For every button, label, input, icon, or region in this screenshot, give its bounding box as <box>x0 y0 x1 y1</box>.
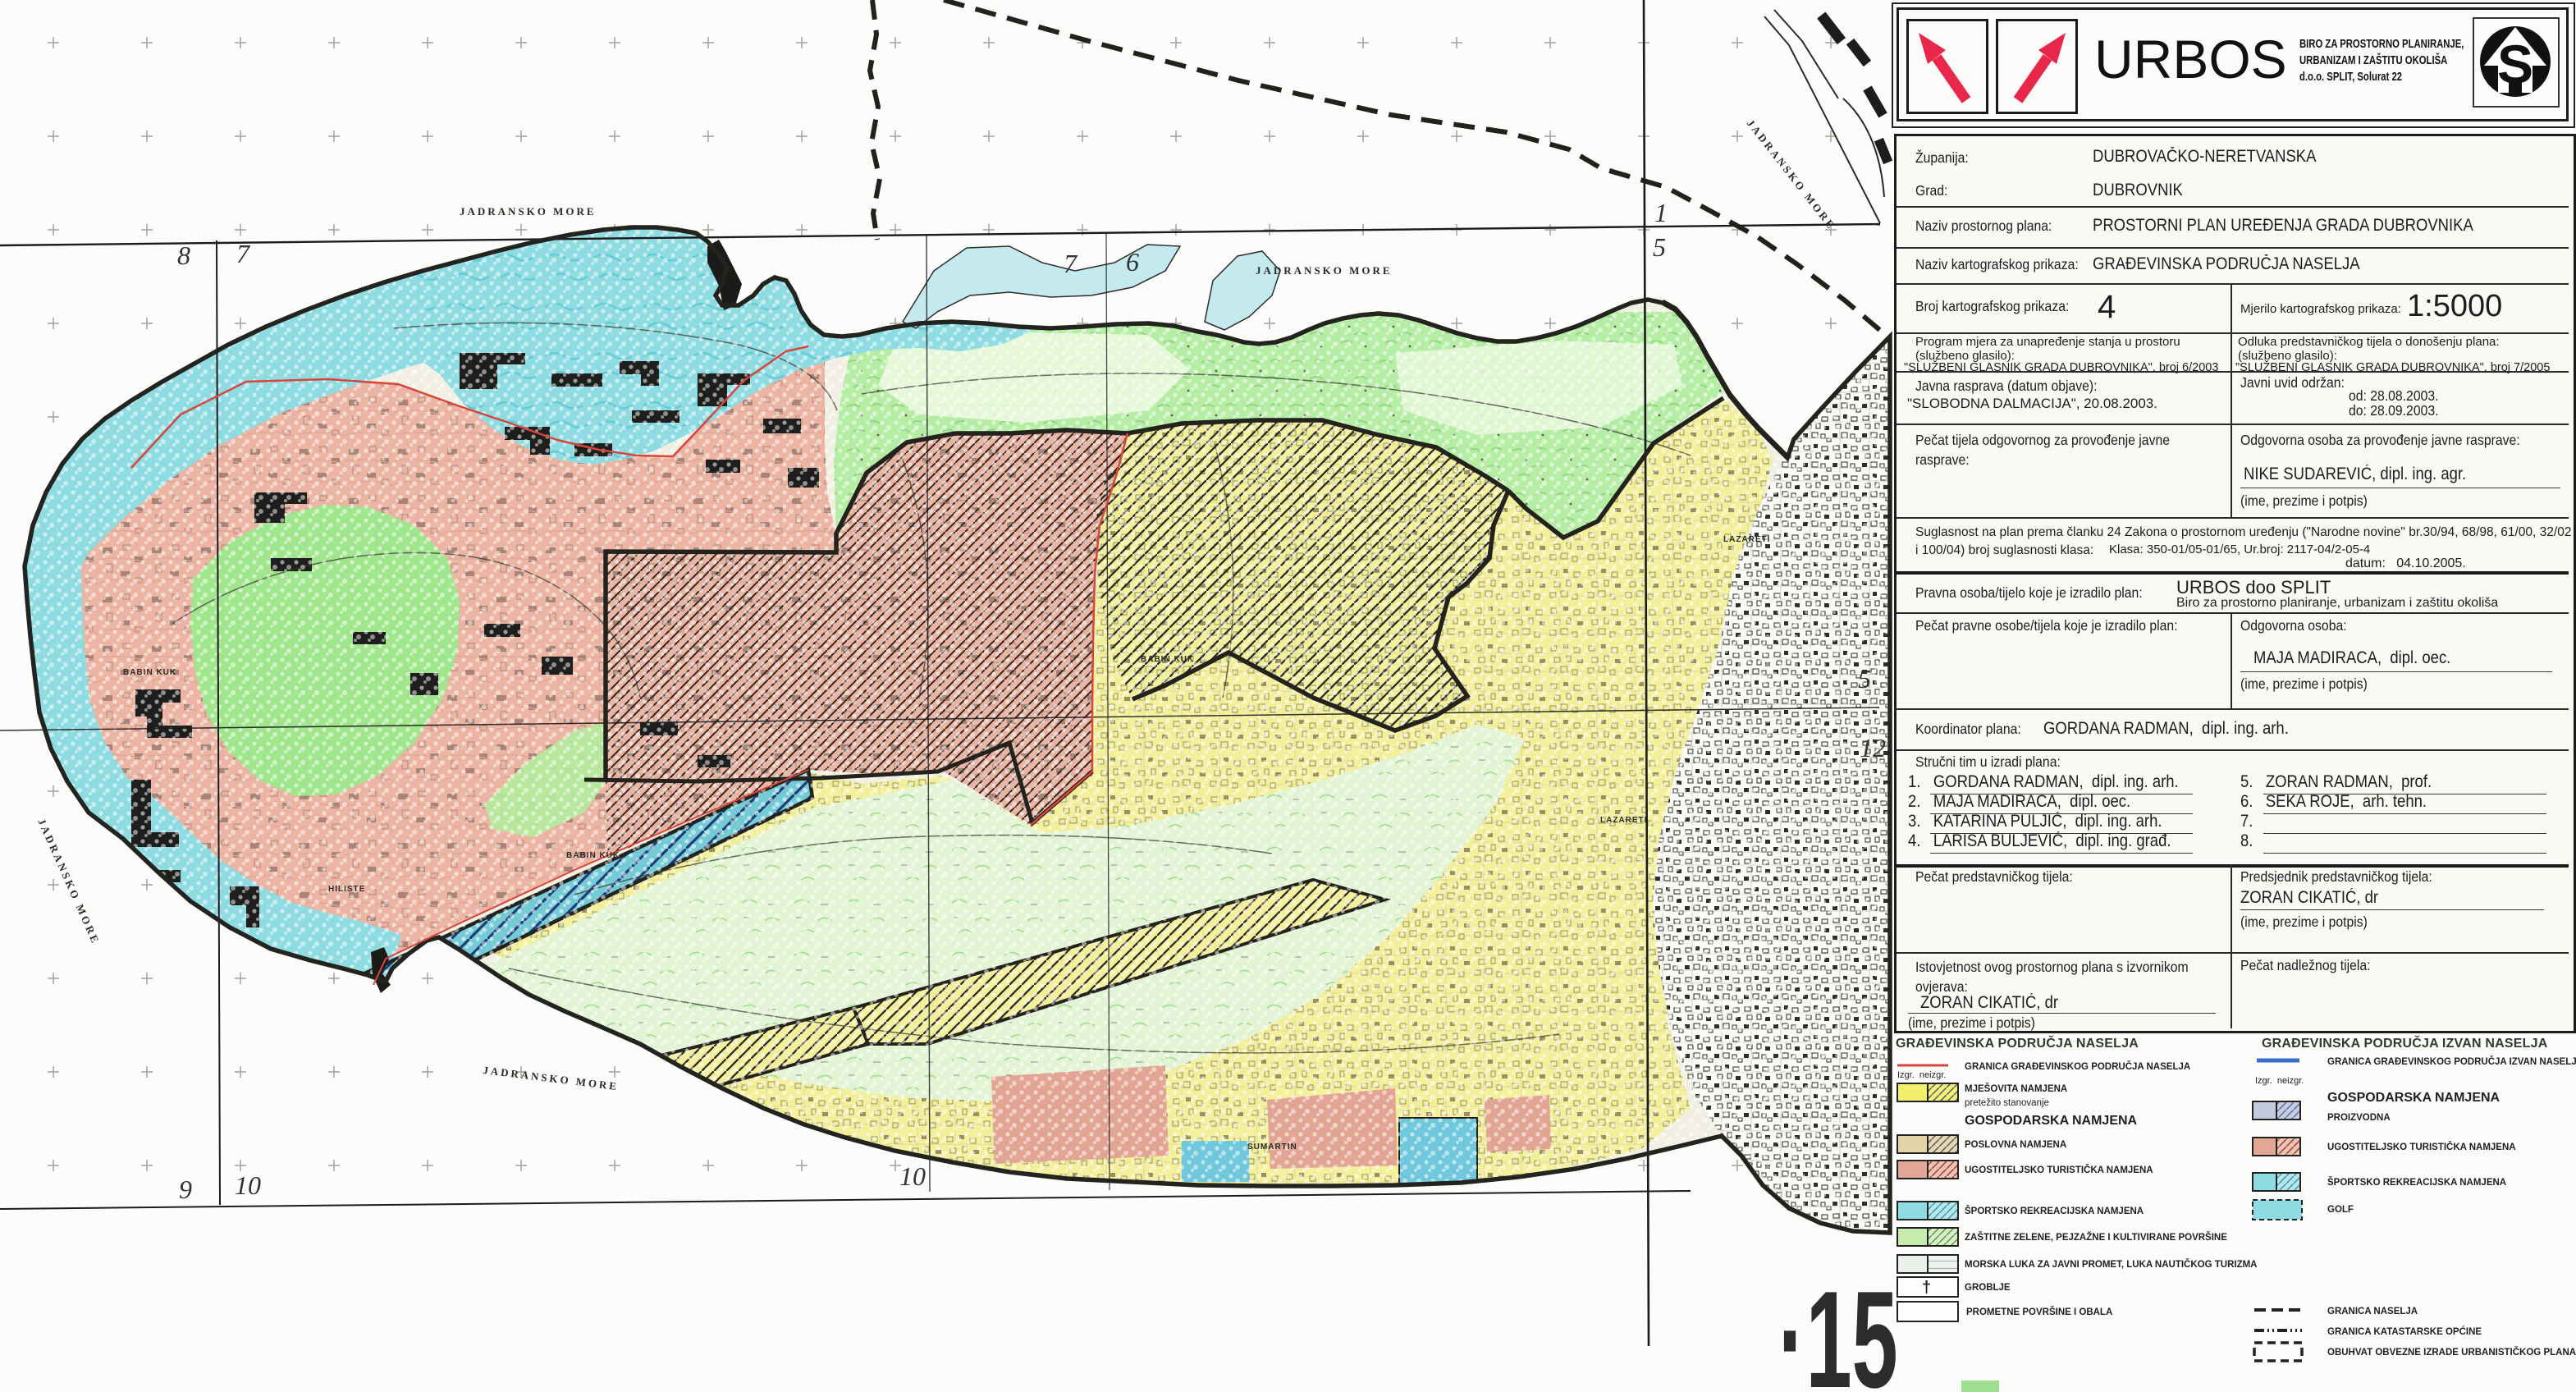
svg-text:7: 7 <box>1064 249 1078 278</box>
svg-text:POSLOVNA NAMJENA: POSLOVNA NAMJENA <box>1965 1140 2066 1150</box>
svg-text:BABIN KUK: BABIN KUK <box>123 668 176 677</box>
svg-text:OBUHVAT OBVEZNE IZRADE URBANIS: OBUHVAT OBVEZNE IZRADE URBANISTIČKOG PLA… <box>2327 1347 2576 1358</box>
svg-text:MJEŠOVITA NAMJENA: MJEŠOVITA NAMJENA <box>1965 1083 2067 1094</box>
svg-text:pretežito stanovanje: pretežito stanovanje <box>1965 1098 2049 1108</box>
svg-text:ŠPORTSKO REKREACIJSKA NAMJENA: ŠPORTSKO REKREACIJSKA NAMJENA <box>1965 1206 2144 1216</box>
svg-text:GRANICA GRAĐEVINSKOG PODRUČJA: GRANICA GRAĐEVINSKOG PODRUČJA NASELJA <box>1965 1061 2190 1072</box>
svg-text:†: † <box>1922 1279 1931 1297</box>
svg-text:GROBLJE: GROBLJE <box>1965 1283 2011 1293</box>
svg-text:7: 7 <box>236 239 251 268</box>
svg-text:GOSPODARSKA NAMJENA: GOSPODARSKA NAMJENA <box>2327 1091 2501 1105</box>
svg-text:10: 10 <box>235 1170 261 1200</box>
svg-text:UGOSTITELJSKO TURISTIČKA NAMJE: UGOSTITELJSKO TURISTIČKA NAMJENA <box>2327 1142 2516 1152</box>
svg-text:GRANICA KATASTARSKE OPĆINE: GRANICA KATASTARSKE OPĆINE <box>2327 1326 2482 1337</box>
svg-text:LAZARETI: LAZARETI <box>1600 816 1647 825</box>
svg-text:GRANICA GRAĐEVINSKOG PODRUČJA: GRANICA GRAĐEVINSKOG PODRUČJA IZVAN NASE… <box>2327 1056 2576 1067</box>
svg-text:9: 9 <box>179 1174 192 1204</box>
svg-text:HILISTE: HILISTE <box>328 885 365 894</box>
svg-text:·15: ·15 <box>1778 1264 1898 1392</box>
svg-text:JADRANSKO MORE: JADRANSKO MORE <box>460 205 597 217</box>
svg-text:GRANICA NASELJA: GRANICA NASELJA <box>2327 1307 2418 1316</box>
svg-text:PROMETNE POVRŠINE I OBALA: PROMETNE POVRŠINE I OBALA <box>1966 1307 2112 1317</box>
svg-text:LAZARETI: LAZARETI <box>1723 535 1770 544</box>
svg-text:1: 1 <box>1654 198 1668 227</box>
svg-text:ŠPORTSKO REKREACIJSKA NAMJENA: ŠPORTSKO REKREACIJSKA NAMJENA <box>2327 1177 2506 1188</box>
svg-text:BABIN KUK: BABIN KUK <box>1141 655 1194 664</box>
svg-text:12: 12 <box>1860 733 1886 762</box>
svg-text:JADRANSKO MORE: JADRANSKO MORE <box>1256 264 1393 277</box>
svg-text:GOSPODARSKA NAMJENA: GOSPODARSKA NAMJENA <box>1965 1114 2138 1128</box>
svg-text:UGOSTITELJSKO TURISTIČKA NAMJE: UGOSTITELJSKO TURISTIČKA NAMJENA <box>1965 1165 2153 1175</box>
svg-text:Izgr. neizgr.: Izgr. neizgr. <box>2255 1076 2304 1086</box>
svg-text:SUMARTIN: SUMARTIN <box>1247 1142 1297 1152</box>
svg-text:5: 5 <box>1858 664 1871 694</box>
svg-text:BABIN KUK: BABIN KUK <box>566 851 620 860</box>
svg-text:Izgr. neizgr.: Izgr. neizgr. <box>1897 1070 1946 1080</box>
svg-text:8: 8 <box>177 240 190 270</box>
svg-text:6: 6 <box>1126 247 1139 277</box>
svg-text:ZAŠTITNE ZELENE, PEJZAŽNE I KU: ZAŠTITNE ZELENE, PEJZAŽNE I KULTIVIRANE … <box>1965 1232 2227 1243</box>
svg-text:S: S <box>2497 34 2533 94</box>
svg-text:MORSKA LUKA ZA JAVNI PROMET, L: MORSKA LUKA ZA JAVNI PROMET, LUKA NAUTIČ… <box>1965 1259 2257 1270</box>
svg-text:10: 10 <box>899 1161 926 1191</box>
svg-text:5: 5 <box>1653 232 1666 262</box>
svg-text:GOLF: GOLF <box>2327 1205 2354 1215</box>
svg-text:PROIZVODNA: PROIZVODNA <box>2327 1113 2391 1123</box>
